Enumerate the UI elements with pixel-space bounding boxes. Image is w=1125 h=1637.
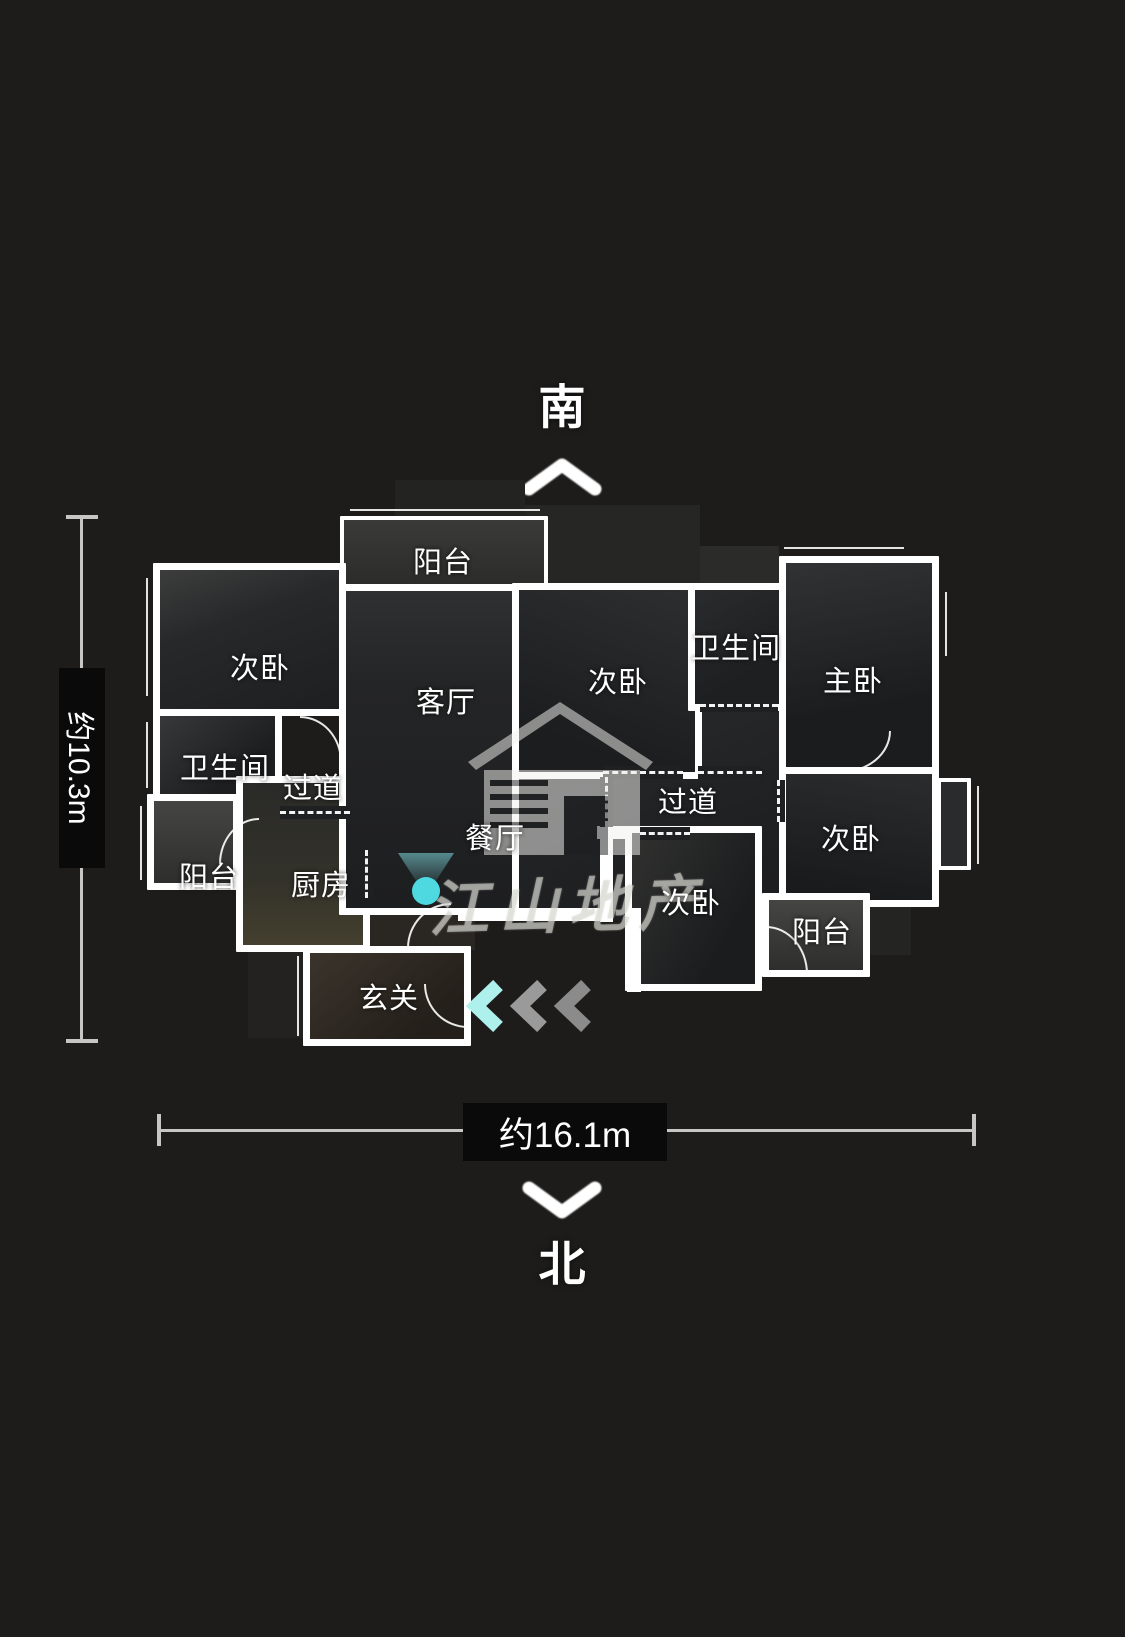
window-balcony-left	[140, 806, 142, 880]
label-master-bedroom: 主卧	[823, 658, 883, 700]
dimension-depth-label: 约10.3m	[59, 668, 105, 868]
entry-direction-arrows-icon	[466, 980, 606, 1032]
compass-south-label: 南	[539, 369, 586, 438]
window-bay-right	[977, 786, 979, 864]
label-balcony-right: 阳台	[792, 909, 852, 951]
label-bedroom-right: 次卧	[821, 816, 881, 858]
door-bedroom-tl	[300, 716, 342, 762]
dimension-cap-bottom	[66, 1039, 98, 1043]
label-dining-room: 餐厅	[465, 815, 525, 857]
label-living-room: 客厅	[416, 679, 476, 721]
dimension-cap-left	[157, 1114, 161, 1146]
room-bedroom-top-left	[153, 563, 346, 716]
bay-window-right	[937, 778, 971, 870]
window-master-right	[945, 592, 947, 656]
scan-bleed-patch	[395, 480, 525, 518]
window-foyer-left	[297, 956, 299, 1036]
label-hallway-right: 过道	[658, 779, 718, 821]
down-chevron-icon	[521, 1178, 603, 1222]
window-balcony-top	[350, 509, 540, 511]
compass-north-label: 北	[539, 1226, 586, 1295]
dimension-width-label: 约16.1m	[463, 1103, 667, 1161]
scan-bleed-patch	[700, 546, 779, 586]
up-chevron-icon	[521, 455, 603, 499]
opening-kitchen-right	[360, 850, 373, 898]
label-hallway-left: 过道	[283, 765, 343, 807]
dimension-cap-top	[66, 515, 98, 519]
opening-bedroom-right-left	[772, 780, 785, 822]
label-bedroom-bottom: 次卧	[661, 880, 721, 922]
label-balcony-top: 阳台	[413, 539, 473, 581]
label-bathroom-left: 卫生间	[180, 745, 270, 787]
label-balcony-left: 阳台	[179, 854, 239, 896]
window-bathroom-left	[146, 722, 148, 788]
label-bedroom-tl: 次卧	[230, 645, 290, 687]
scan-bleed-patch	[248, 950, 310, 1038]
opening-bathroom-right-bottom	[700, 699, 778, 712]
scan-bleed-patch	[525, 505, 700, 587]
label-bathroom-right: 卫生间	[691, 625, 781, 667]
opening-hallway-left-bottom	[280, 806, 350, 819]
camera-position-icon	[398, 853, 456, 907]
window-master-top	[784, 547, 904, 549]
label-kitchen: 厨房	[291, 862, 351, 904]
label-bedroom-center: 次卧	[588, 659, 648, 701]
opening-hallway-right-top	[698, 766, 762, 779]
dimension-cap-right	[972, 1114, 976, 1146]
window-bedroom-tl-left	[146, 578, 148, 696]
label-foyer: 玄关	[359, 975, 419, 1017]
floorplan-page: 南	[0, 0, 1125, 1637]
